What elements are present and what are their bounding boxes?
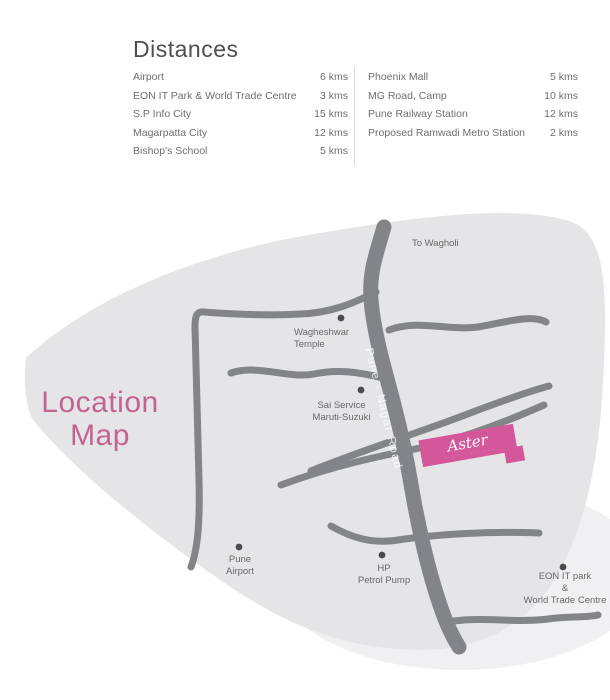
poi-dot-wagheshwar-temple (338, 315, 345, 322)
map-section-title: Location Map (22, 386, 178, 452)
label-sai-service: Sai Service Maruti-Suzuki (304, 400, 379, 424)
brochure-page: Distances Airport 6 kms EON IT Park & Wo… (0, 0, 610, 700)
label-to-wagholi: To Wagholi (412, 238, 459, 250)
label-wagheshwar-temple: Wagheshwar Temple (294, 327, 349, 351)
poi-dot-sai-service (358, 387, 365, 394)
label-pune-airport: Pune Airport (214, 554, 266, 578)
label-hp-petrol-pump: HP Petrol Pump (347, 563, 421, 587)
poi-dot-pune-airport (236, 544, 243, 551)
label-eon-it-park: EON IT park & World Trade Centre (513, 571, 610, 607)
poi-dot-hp-petrol-pump (379, 552, 386, 559)
poi-dot-eon-it-park (560, 564, 567, 571)
